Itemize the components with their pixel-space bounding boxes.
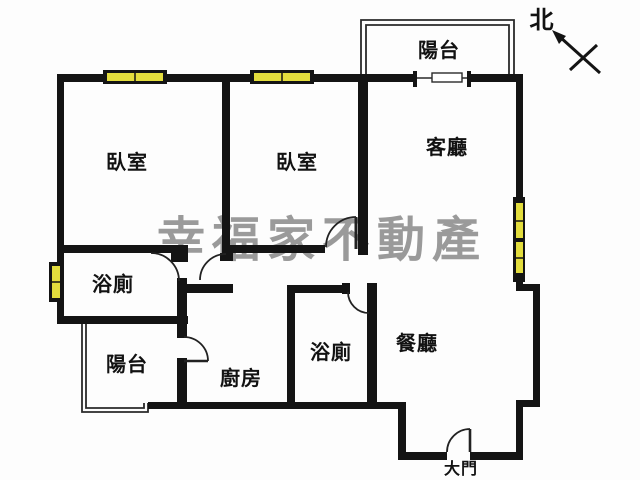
door-arc-bathroom2	[348, 292, 369, 313]
door-arc-bedroom2	[326, 217, 356, 247]
walls	[57, 74, 540, 460]
room-label-bedroom2: 臥室	[276, 152, 318, 172]
room-label-balcony-top: 陽台	[418, 40, 460, 60]
balcony-door	[413, 71, 471, 87]
room-label-dining-room: 餐廳	[396, 333, 438, 353]
room-label-living-room: 客廳	[426, 137, 468, 157]
window-bedroom2	[250, 70, 314, 84]
compass-arrow	[552, 30, 600, 73]
door-arc-balcony-kitchen	[184, 337, 208, 361]
floorplan-image: 幸福家不動產	[0, 0, 640, 480]
window-bedroom1	[103, 70, 167, 84]
room-label-bathroom1: 浴廁	[92, 274, 134, 294]
room-label-bathroom2: 浴廁	[310, 342, 352, 362]
room-label-bedroom1: 臥室	[106, 152, 148, 172]
door-arc-main	[447, 429, 470, 452]
floorplan-drawing	[0, 0, 640, 480]
room-label-balcony-bottom: 陽台	[106, 354, 148, 374]
compass-north-label: 北	[530, 8, 555, 32]
window-living-room	[513, 197, 525, 282]
room-label-kitchen: 廚房	[220, 368, 262, 388]
window-bathroom1	[49, 262, 63, 302]
main-door-label: 大門	[444, 461, 478, 477]
